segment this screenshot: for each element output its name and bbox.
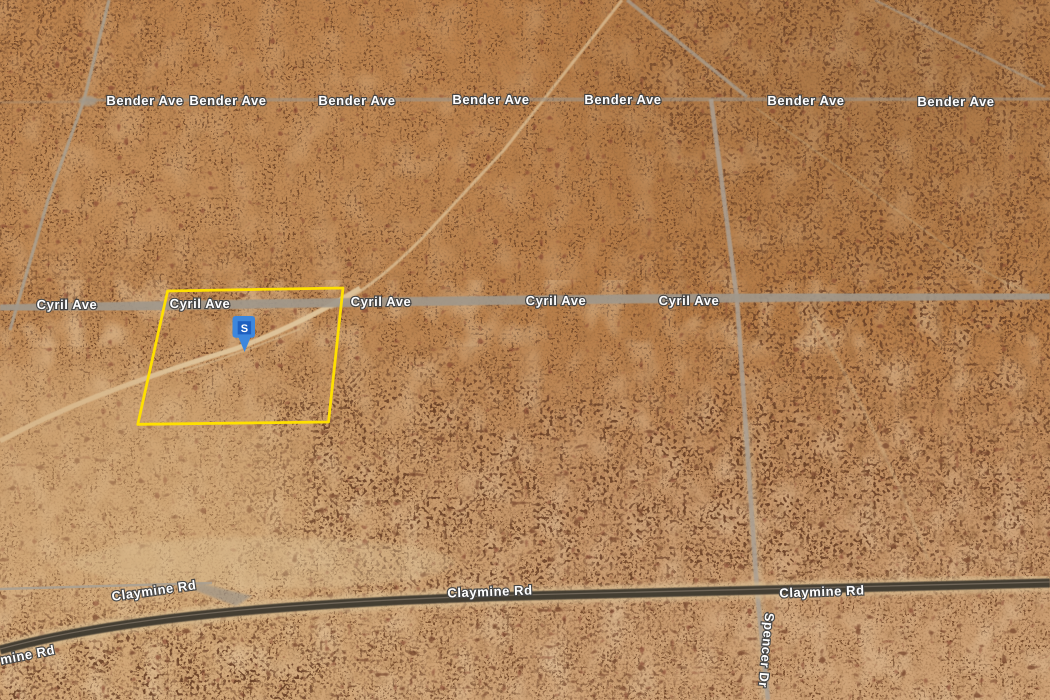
svg-text:Claymine Rd: Claymine Rd <box>779 583 865 601</box>
svg-text:Cyril Ave: Cyril Ave <box>351 294 412 309</box>
svg-text:Cyril Ave: Cyril Ave <box>526 293 587 308</box>
svg-text:Bender Ave: Bender Ave <box>767 93 844 108</box>
svg-text:Bender Ave: Bender Ave <box>106 93 183 108</box>
svg-text:Bender Ave: Bender Ave <box>189 93 266 108</box>
svg-text:Cyril Ave: Cyril Ave <box>37 297 98 312</box>
svg-text:Bender Ave: Bender Ave <box>917 94 994 109</box>
svg-text:Claymine Rd: Claymine Rd <box>447 583 533 601</box>
svg-text:Cyril Ave: Cyril Ave <box>170 296 231 311</box>
svg-text:S: S <box>241 323 248 335</box>
svg-text:Cyril Ave: Cyril Ave <box>659 293 720 308</box>
svg-text:Bender Ave: Bender Ave <box>584 92 661 107</box>
svg-text:Bender Ave: Bender Ave <box>318 93 395 108</box>
svg-text:Bender Ave: Bender Ave <box>452 92 529 107</box>
